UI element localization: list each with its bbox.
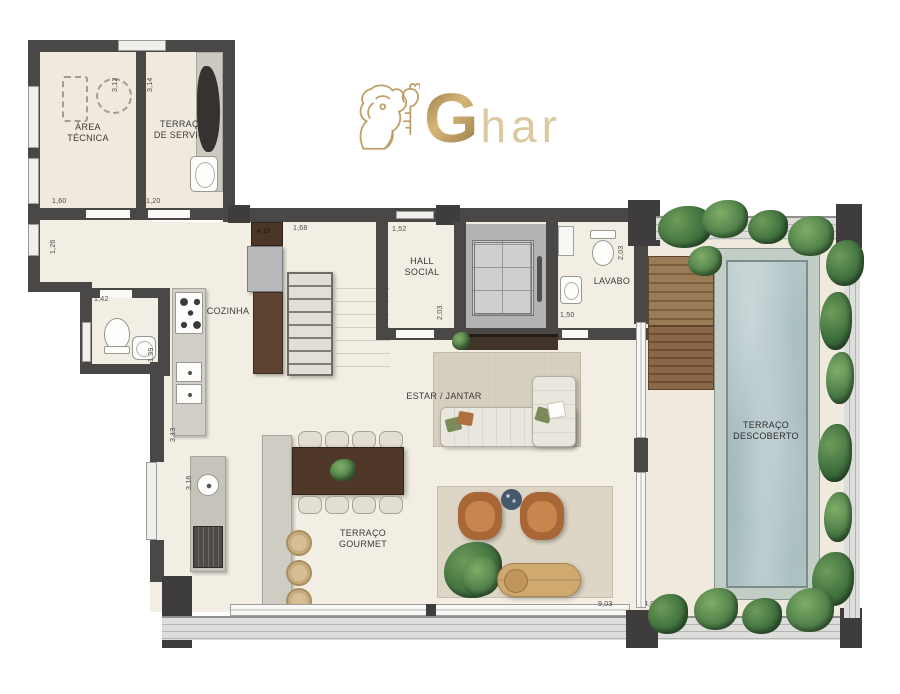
- wall-segment: [376, 222, 388, 334]
- door-mullion: [426, 604, 436, 616]
- kitchen-island: [253, 292, 283, 374]
- elevator-cab: [472, 240, 534, 316]
- dining-chair: [379, 496, 403, 514]
- toilet-tank: [104, 346, 130, 354]
- staircase: [287, 272, 333, 376]
- door-opening: [148, 210, 190, 218]
- wall-segment: [454, 222, 466, 334]
- room-label-terraco-descoberto: TERRAÇO DESCOBERTO: [718, 420, 814, 442]
- dim-1-26: 1,26: [50, 222, 57, 254]
- dim-1-68: 1,68: [293, 225, 307, 232]
- elevator-door-rail: [537, 256, 542, 302]
- dim-1-20: 1,20: [146, 198, 160, 205]
- oval-coffee-table: [497, 563, 581, 597]
- window: [28, 158, 39, 204]
- plant: [688, 246, 722, 276]
- plant: [742, 598, 782, 634]
- dim-2-03-lavabo: 2,03: [618, 228, 625, 260]
- dim-3-14: 3,14: [147, 56, 154, 92]
- dim-1-52: 1,52: [392, 226, 406, 233]
- plant: [824, 492, 852, 542]
- armchair: [458, 492, 502, 540]
- room-label-hall-social: HALL SOCIAL: [396, 256, 448, 278]
- window: [28, 86, 39, 148]
- wall-segment: [634, 438, 648, 472]
- sink-basin: [564, 282, 579, 300]
- plant: [826, 352, 854, 404]
- lavabo-door: [558, 226, 574, 256]
- plant: [826, 240, 864, 286]
- plant-pot: [452, 332, 470, 350]
- table-tray: [504, 569, 528, 593]
- bbq-grill: [193, 526, 223, 568]
- gourmet-bar-counter: [262, 435, 292, 612]
- sofa-pillow: [547, 401, 567, 420]
- dim-3-12: 3,12: [112, 56, 119, 92]
- plant: [462, 556, 500, 596]
- room-label-area-tecnica: ÁREA TÉCNICA: [48, 122, 128, 144]
- table-centerpiece: [330, 459, 356, 481]
- plant: [818, 424, 852, 482]
- window: [146, 462, 157, 540]
- floor-plan: G har ÁREA TÉCNICA TERRAÇO DE SERVIÇO 3,…: [0, 0, 900, 694]
- bar-stool: [286, 560, 312, 586]
- room-label-estar-jantar: ESTAR / JANTAR: [398, 391, 490, 402]
- door-opening: [562, 330, 588, 338]
- kitchen-sink: [176, 384, 202, 404]
- sofa-pillow: [457, 411, 474, 426]
- plant: [702, 200, 748, 238]
- plant: [820, 292, 852, 350]
- armchair: [520, 492, 564, 540]
- bbq-sink-round: [197, 474, 219, 496]
- armchair-cushion: [527, 501, 557, 532]
- window: [396, 211, 434, 219]
- dining-chair: [298, 496, 322, 514]
- plant: [694, 588, 738, 630]
- equipment-dashed-rect: [62, 76, 88, 122]
- terrace-glass-door: [636, 472, 646, 608]
- dining-chair: [325, 496, 349, 514]
- brand-name: G har: [424, 83, 562, 153]
- utility-sink: [190, 156, 218, 192]
- wall-segment: [150, 362, 164, 462]
- room-label-lavabo: LAVABO: [584, 276, 640, 287]
- tv-console: [462, 334, 558, 350]
- side-table: [501, 489, 522, 510]
- terrace-glass-door: [636, 322, 646, 438]
- wood-deck-lower: [648, 326, 714, 390]
- door-opening: [396, 330, 434, 338]
- refrigerator: [247, 246, 283, 292]
- wall-segment: [28, 208, 235, 220]
- brand-logo: G har: [352, 66, 562, 170]
- window: [118, 40, 166, 51]
- dim-3-13: 3,13: [170, 410, 177, 442]
- lavabo-sink: [560, 276, 582, 304]
- door-opening: [86, 210, 130, 218]
- lion-key-icon: [352, 72, 420, 164]
- dim-1-50: 1,50: [560, 312, 574, 319]
- wall-segment: [546, 222, 558, 334]
- room-label-cozinha: COZINHA: [198, 306, 258, 317]
- window: [82, 322, 91, 362]
- bar-stool: [286, 530, 312, 556]
- dim-9-03: 9,03: [598, 601, 612, 608]
- plant: [648, 594, 688, 634]
- pillar: [228, 205, 250, 223]
- lavabo-toilet: [592, 240, 614, 266]
- window: [28, 224, 39, 256]
- room-label-terraco-servico: TERRAÇO DE SERVIÇO: [141, 119, 225, 141]
- lavabo-toilet-tank: [590, 230, 616, 239]
- plant: [786, 588, 834, 632]
- room-label-terraco-gourmet: TERRAÇO GOURMET: [318, 528, 408, 550]
- sink-basin: [195, 162, 215, 188]
- dim-4-15: 4,15: [257, 228, 270, 235]
- dim-1-60: 1,60: [52, 198, 66, 205]
- kitchen-sink: [176, 362, 202, 382]
- dim-1-39: 1,39: [148, 334, 155, 362]
- plant: [788, 216, 834, 256]
- dining-chair: [352, 496, 376, 514]
- dim-2-03-hall: 2,03: [437, 288, 444, 320]
- brand-letters-har: har: [481, 99, 562, 153]
- dim-3-16: 3,16: [186, 458, 193, 490]
- dim-1-42: 1,42: [94, 296, 108, 303]
- armchair-cushion: [465, 501, 495, 532]
- plant: [748, 210, 788, 244]
- brand-letter-g: G: [424, 83, 478, 153]
